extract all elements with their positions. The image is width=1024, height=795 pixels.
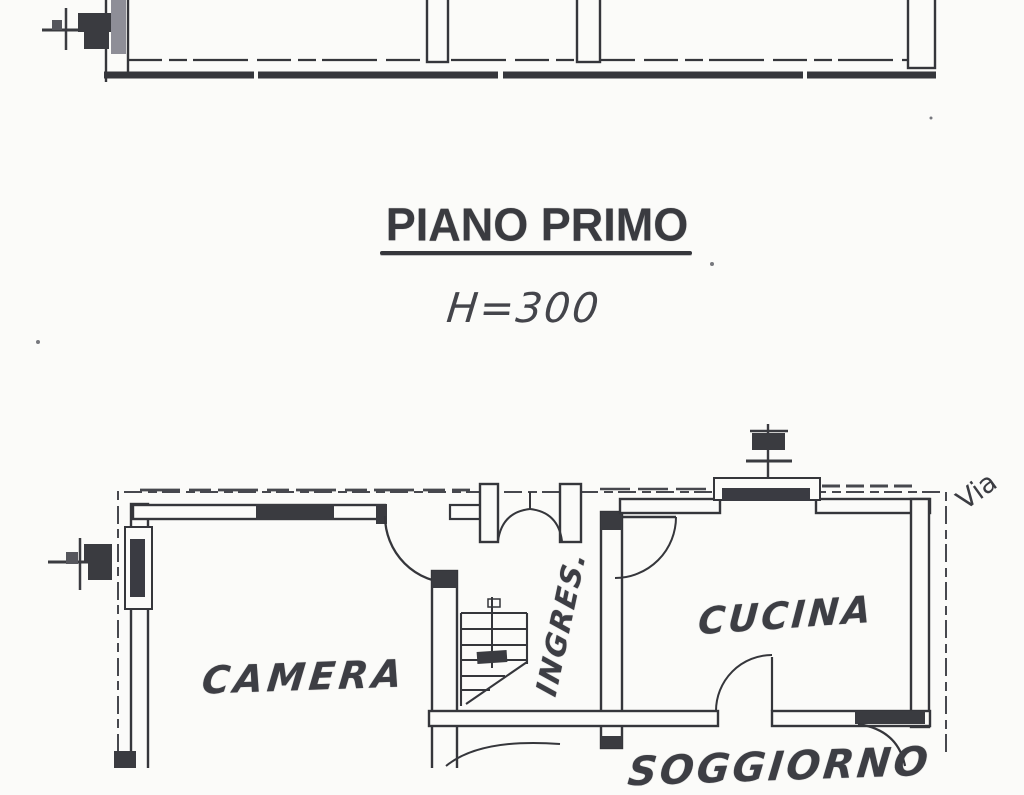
chimney-flue-symbol-upper-left: [42, 8, 111, 50]
entrance-double-door: [480, 484, 581, 542]
ceiling-height-note: H=300: [444, 284, 602, 332]
window-kitchen-top: [714, 478, 820, 501]
door-arc-cucina-bottom: [716, 655, 772, 711]
door-arc-cucina-entry: [615, 517, 676, 578]
chimney-flue-symbol-above-kitchen: [746, 424, 792, 477]
chimney-flue-symbol-lower-left: [48, 538, 112, 590]
room-label-camera: CAMERA: [200, 651, 408, 702]
staircase: [461, 597, 527, 706]
scanned-floor-plan-page: PIANO PRIMO H=300 CAMERA INGRES. CUCINA …: [0, 0, 1024, 768]
window-left-wall: [125, 527, 152, 609]
door-arc-ingresso-bottom: [446, 743, 560, 766]
floor-plan-linework: [0, 0, 1024, 768]
title-underline: [380, 251, 692, 255]
room-label-soggiorno: SOGGIORNO: [626, 739, 933, 795]
upper-plan-fragment: [104, 0, 936, 82]
plan-title: PIANO PRIMO: [381, 198, 693, 251]
